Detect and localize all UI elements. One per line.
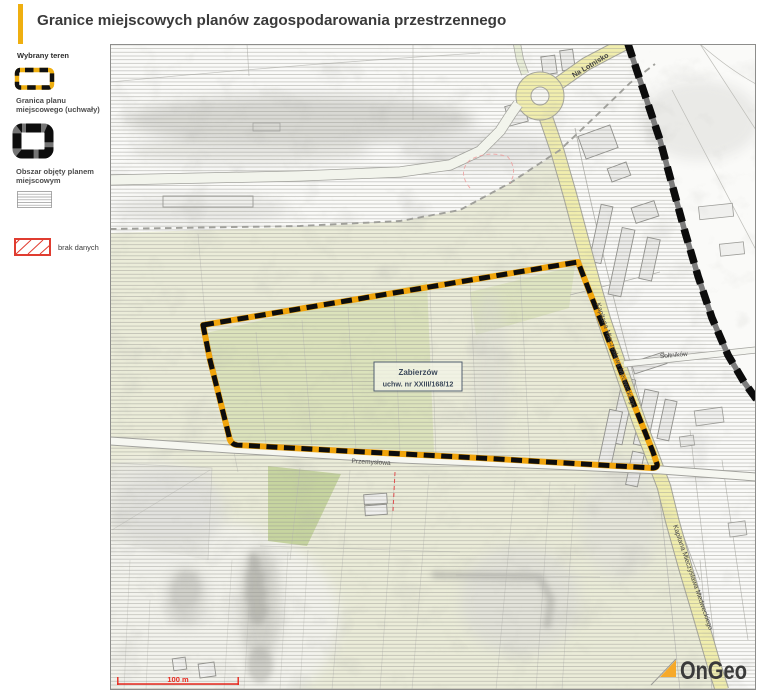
svg-text:OnGeo: OnGeo: [680, 657, 747, 685]
svg-text:100 m: 100 m: [167, 675, 189, 684]
svg-text:Zabierzów: Zabierzów: [398, 368, 438, 377]
svg-text:uchw. nr XXIII/168/12: uchw. nr XXIII/168/12: [383, 380, 454, 389]
